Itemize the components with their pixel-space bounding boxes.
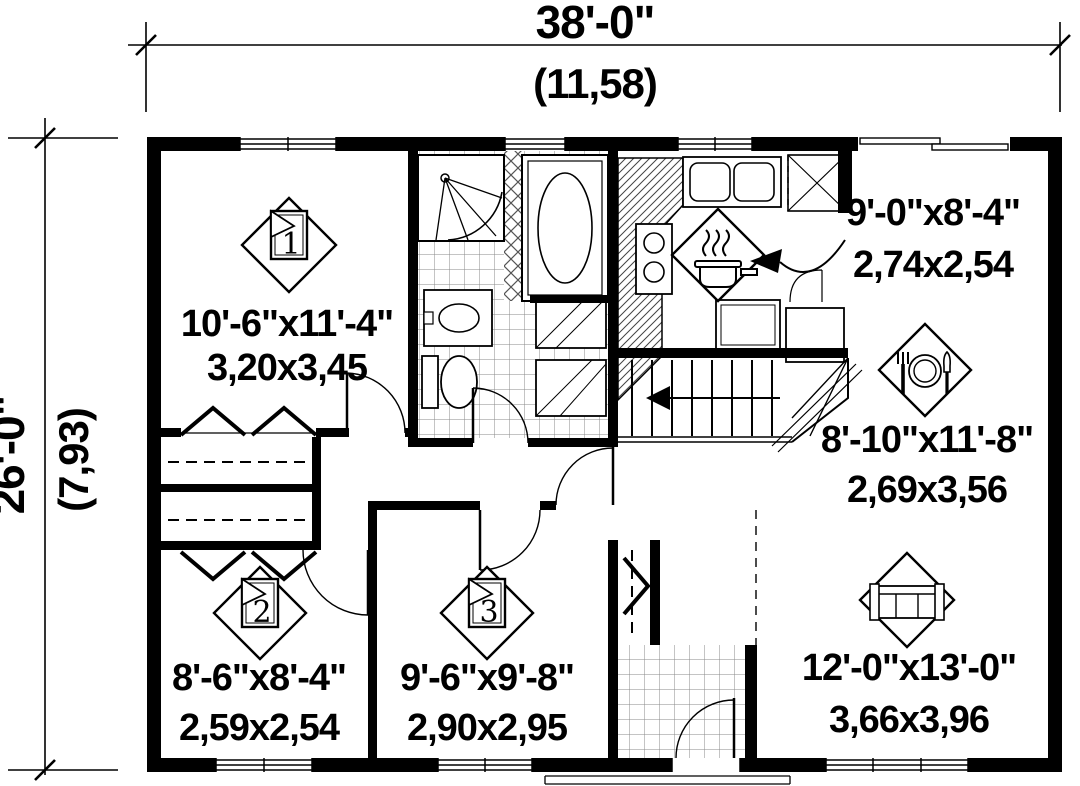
dishwasher-icon — [788, 155, 846, 211]
height-imperial-label: 26'-0" — [0, 396, 34, 515]
room-marker-bedroom-3: 3 — [441, 567, 533, 659]
label-living-metric: 3,66x3,96 — [829, 699, 989, 741]
window — [240, 137, 336, 151]
label-dining-imperial: 8'-10"x11'-8" — [821, 419, 1033, 461]
room-number: 2 — [252, 595, 271, 630]
label-kitchen-imperial: 9'-0"x8'-4" — [846, 192, 1020, 234]
door-hall-entry — [556, 447, 613, 505]
window — [826, 758, 968, 772]
floor-plan: 1 — [0, 0, 1080, 786]
room-number: 1 — [281, 227, 300, 262]
porch — [545, 776, 790, 784]
label-bedroom-1-metric: 3,20x3,45 — [207, 347, 368, 389]
label-bedroom-3-imperial: 9'-6"x9'-8" — [400, 657, 574, 699]
bifold-door-icon — [624, 558, 648, 614]
label-bedroom-2-imperial: 8'-6"x8'-4" — [172, 657, 346, 699]
label-living-imperial: 12'-0"x13'-0" — [802, 647, 1016, 689]
room-marker-dining — [879, 324, 971, 416]
room-marker-kitchen — [672, 209, 764, 301]
bathtub-icon — [522, 155, 608, 301]
height-metric-label: (7,93) — [50, 408, 97, 512]
width-imperial-label: 38'-0" — [536, 0, 655, 48]
label-kitchen-metric: 2,74x2,54 — [853, 244, 1014, 286]
kitchen-sink-icon — [683, 157, 781, 207]
door-bedroom-2 — [303, 550, 368, 615]
door-bedroom-3 — [480, 510, 540, 570]
room-number: 3 — [479, 595, 498, 630]
label-bedroom-2-metric: 2,59x2,54 — [179, 707, 340, 749]
label-bedroom-1-imperial: 10'-6"x11'-4" — [181, 303, 393, 345]
width-metric-label: (11,58) — [533, 60, 657, 107]
room-marker-living — [860, 553, 954, 647]
window — [438, 758, 532, 772]
label-dining-metric: 2,69x3,56 — [847, 469, 1007, 511]
sliding-door — [858, 137, 1010, 151]
label-bedroom-3-metric: 2,90x2,95 — [407, 707, 568, 749]
room-marker-bedroom-2: 2 — [214, 567, 306, 659]
sink-icon — [424, 290, 492, 346]
shower-icon — [418, 155, 504, 241]
window — [505, 137, 565, 151]
kitchen-label-arrow — [750, 240, 845, 273]
bifold-door-icon — [181, 552, 316, 579]
window — [216, 758, 312, 772]
stove-icon — [636, 224, 672, 294]
bifold-door-icon — [181, 408, 316, 435]
toilet-icon — [422, 356, 477, 408]
room-marker-bedroom-1: 1 — [242, 198, 336, 292]
sofa-icon — [870, 584, 944, 620]
window — [678, 137, 752, 151]
